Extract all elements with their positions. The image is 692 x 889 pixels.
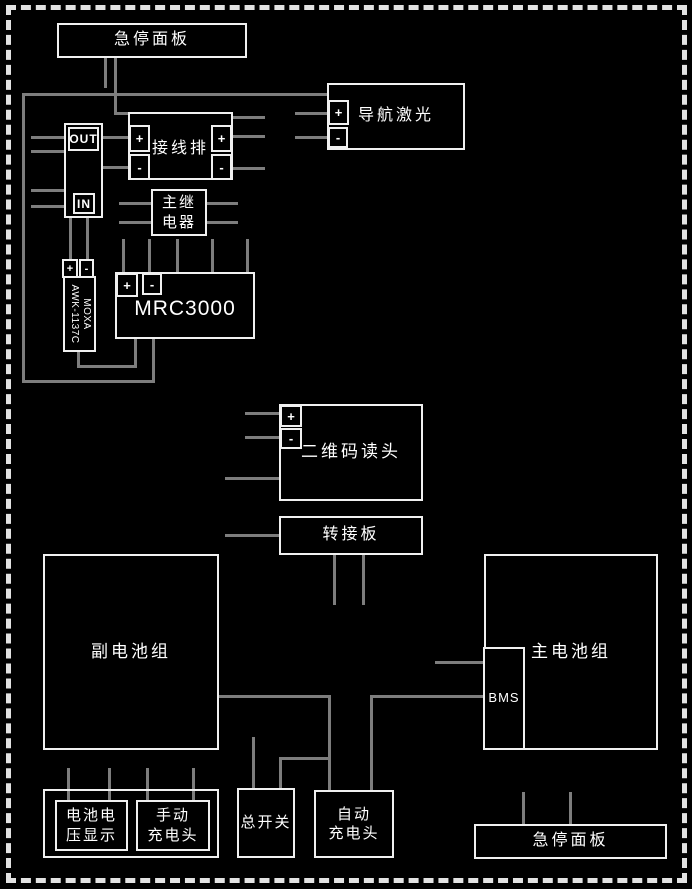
moxa-label-line1: MOXA — [80, 285, 92, 344]
minus-terminal: - — [328, 127, 348, 148]
wire-segment — [219, 695, 330, 698]
wire-segment — [370, 695, 486, 698]
wire-segment — [69, 217, 72, 261]
wire-segment — [31, 189, 64, 192]
wire-segment — [77, 365, 137, 368]
wire-segment — [211, 239, 214, 273]
auto-charger-box: 自动 充电头 — [314, 790, 394, 858]
battery-voltage-display-box: 电池电 压显示 — [55, 800, 128, 851]
minus-terminal: - — [79, 259, 94, 278]
out-in-box: OUT IN — [64, 123, 103, 218]
battery-voltage-display-line2: 压显示 — [66, 826, 117, 846]
wire-segment — [233, 116, 265, 119]
wire-segment — [119, 202, 151, 205]
wire-segment — [103, 136, 129, 139]
plus-terminal: + — [328, 100, 349, 125]
wire-segment — [31, 150, 64, 153]
manual-charger-box: 手动 充电头 — [136, 800, 210, 851]
wire-segment — [435, 661, 485, 664]
auto-charger-line1: 自动 — [337, 805, 371, 825]
moxa-awk1137c-box: MOXA AWK-1137C — [63, 276, 96, 352]
wire-segment — [246, 239, 249, 273]
moxa-awk1137c-label: MOXA AWK-1137C — [68, 285, 92, 344]
wire-segment — [279, 757, 282, 789]
wire-segment — [328, 695, 331, 791]
main-switch-box: 总开关 — [237, 788, 295, 858]
wire-segment — [233, 167, 265, 170]
emergency-stop-panel-bottom: 急停面板 — [474, 824, 667, 859]
wiring-diagram-canvas: 急停面板 + - 导航激光 OUT IN + - + - 接线排 主继 电器 +… — [0, 0, 692, 889]
wire-segment — [522, 792, 525, 825]
wire-segment — [31, 205, 64, 208]
wire-segment — [569, 792, 572, 825]
wire-segment — [134, 338, 137, 368]
plus-terminal: + — [62, 259, 78, 278]
wire-segment — [22, 93, 328, 96]
wire-segment — [22, 380, 155, 383]
secondary-battery-pack-box: 副电池组 — [43, 554, 219, 750]
nav-laser-label: 导航激光 — [358, 106, 434, 127]
wire-segment — [362, 555, 365, 605]
wire-segment — [152, 338, 155, 383]
plus-terminal: + — [211, 125, 232, 152]
main-relay-label-line2: 电器 — [162, 213, 196, 233]
minus-terminal: - — [211, 154, 232, 180]
wire-segment — [370, 695, 373, 791]
wire-segment — [245, 412, 280, 415]
bms-label: BMS — [488, 690, 519, 707]
wire-segment — [114, 57, 117, 115]
secondary-battery-pack-label: 副电池组 — [91, 641, 171, 663]
wire-segment — [104, 57, 107, 88]
wire-segment — [225, 534, 280, 537]
wire-segment — [333, 555, 336, 605]
nav-laser-box: + - 导航激光 — [327, 83, 465, 150]
wire-segment — [22, 93, 25, 383]
terminal-strip-label: 接线排 — [152, 139, 209, 160]
qr-code-reader-box: + - 二维码读头 — [279, 404, 423, 501]
bms-box: BMS — [483, 647, 525, 750]
wire-segment — [295, 136, 328, 139]
wire-segment — [207, 221, 238, 224]
out-port: OUT — [68, 127, 99, 151]
battery-voltage-display-line1: 电池电 — [66, 806, 117, 826]
minus-terminal: - — [280, 428, 302, 449]
plus-terminal: + — [129, 125, 150, 152]
main-relay-box: 主继 电器 — [151, 189, 207, 236]
wire-segment — [148, 239, 151, 273]
wire-segment — [207, 202, 238, 205]
wire-segment — [119, 221, 151, 224]
wire-segment — [295, 112, 328, 115]
mrc3000-box: + - MRC3000 — [115, 272, 255, 339]
wire-segment — [233, 135, 265, 138]
wire-segment — [176, 239, 179, 273]
emergency-stop-panel-top-label: 急停面板 — [114, 30, 190, 51]
terminal-strip-box: + - + - 接线排 — [128, 112, 233, 180]
qr-code-reader-label: 二维码读头 — [301, 441, 401, 463]
wire-segment — [279, 757, 331, 760]
manual-charger-line1: 手动 — [156, 806, 190, 826]
moxa-label-line2: AWK-1137C — [68, 285, 80, 344]
wire-segment — [122, 239, 125, 273]
main-battery-pack-label: 主电池组 — [531, 641, 611, 663]
emergency-stop-panel-top: 急停面板 — [57, 23, 247, 58]
main-relay-label-line1: 主继 — [162, 193, 196, 213]
wire-segment — [31, 136, 64, 139]
adapter-board-box: 转接板 — [279, 516, 423, 555]
minus-terminal: - — [129, 154, 150, 180]
adapter-board-label: 转接板 — [322, 525, 379, 546]
manual-charger-line2: 充电头 — [147, 826, 198, 846]
plus-terminal: + — [280, 405, 302, 427]
auto-charger-line2: 充电头 — [328, 824, 379, 844]
wire-segment — [86, 217, 89, 261]
wire-segment — [252, 737, 255, 789]
minus-terminal: - — [142, 273, 162, 295]
plus-terminal: + — [116, 273, 138, 297]
mrc3000-label: MRC3000 — [134, 295, 236, 322]
wire-segment — [245, 436, 280, 439]
main-switch-label: 总开关 — [240, 813, 291, 833]
in-port: IN — [73, 193, 95, 214]
wire-segment — [225, 477, 280, 480]
wire-segment — [103, 166, 129, 169]
emergency-stop-panel-bottom-label: 急停面板 — [532, 831, 608, 852]
